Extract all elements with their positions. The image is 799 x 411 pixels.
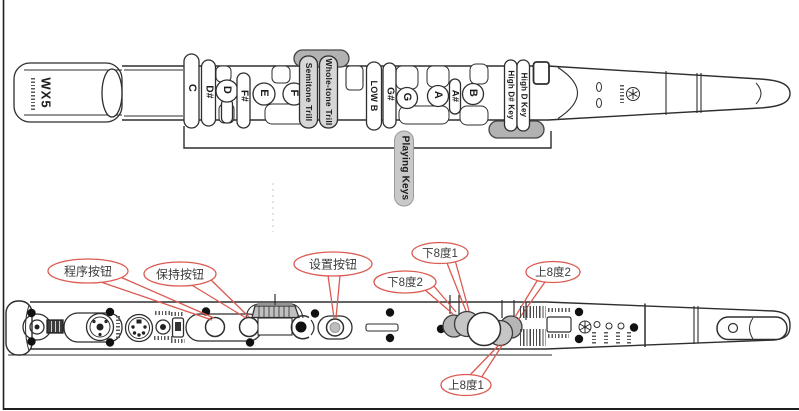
key-label-d-sharp: D# (203, 85, 214, 98)
bottom-view (6, 294, 790, 355)
key-label-a: A (432, 91, 444, 99)
hold-button (240, 318, 259, 337)
rear-body (30, 302, 790, 349)
key-label-e: E (258, 89, 270, 97)
key-label-low-b: LOW B (369, 81, 379, 112)
vent-hole (597, 83, 602, 92)
trim-pot (606, 323, 612, 329)
playing-keys-label: Playing Keys (399, 136, 410, 201)
callout-label-octave-down-1: 下8度1 (422, 245, 458, 261)
joint-rings (666, 71, 701, 115)
callout-label-program: 程序按钮 (64, 263, 112, 280)
trim-pot-microtext (627, 332, 631, 344)
callout-label-octave-up-2: 上8度2 (535, 264, 571, 280)
bell-tip (760, 79, 790, 108)
yamaha-logo-icon (627, 88, 640, 101)
key-label-g: G (401, 93, 413, 102)
trim-pot-microtext (616, 332, 620, 345)
scale-marks (520, 306, 546, 318)
callout-label-setup: 设置按钮 (309, 256, 357, 273)
instrument-line-art (0, 0, 799, 411)
trim-pot (618, 323, 624, 329)
key-label-f-sharp: F# (238, 90, 249, 102)
key-label-d: D (221, 86, 233, 94)
trim-pot-microtext (604, 332, 608, 345)
trim-pot-microtext (592, 332, 596, 345)
dip-switch-block (547, 317, 571, 332)
brand-label: WX5 (39, 77, 54, 108)
key-label-g-sharp: G# (384, 87, 395, 101)
key-label-b: B (467, 89, 479, 97)
key-label-f: F (288, 90, 300, 97)
key-label-high-d: High D Key (519, 73, 528, 118)
brand-microtext (31, 78, 35, 110)
dip-switch-microtext (548, 308, 571, 312)
reed-window (102, 69, 122, 117)
scale-marks (520, 329, 546, 346)
octave-thumb-plate (468, 313, 501, 346)
key-label-semitone-trill: Semitone Trill (304, 63, 314, 122)
jack-microtext (155, 311, 172, 315)
key-label-wholetone-trill: Whole-tone Trill (324, 59, 334, 126)
connector-microtext (116, 316, 120, 339)
key-label-a-sharp: A# (450, 90, 461, 103)
trim-pot (594, 322, 600, 328)
gain-adjust-wheel (579, 321, 591, 333)
callout-label-octave-up-1: 上8度1 (448, 377, 484, 393)
manual-diagram-page: WX5 C D# D F# E F Semitone Trill Whole-t… (0, 0, 799, 411)
switch-microtext (171, 312, 184, 316)
switch-microtext (171, 339, 185, 343)
callout-label-hold: 保持按钮 (156, 266, 204, 283)
dip-switch-microtext (548, 334, 569, 338)
vent-hole (597, 99, 602, 108)
key-label-high-d-sharp: High D# Key (507, 70, 516, 119)
program-button (206, 318, 225, 337)
callout-label-octave-down-2: 下8度2 (387, 274, 423, 290)
logo-microtext (620, 85, 624, 103)
key-label-c: C (186, 84, 198, 92)
